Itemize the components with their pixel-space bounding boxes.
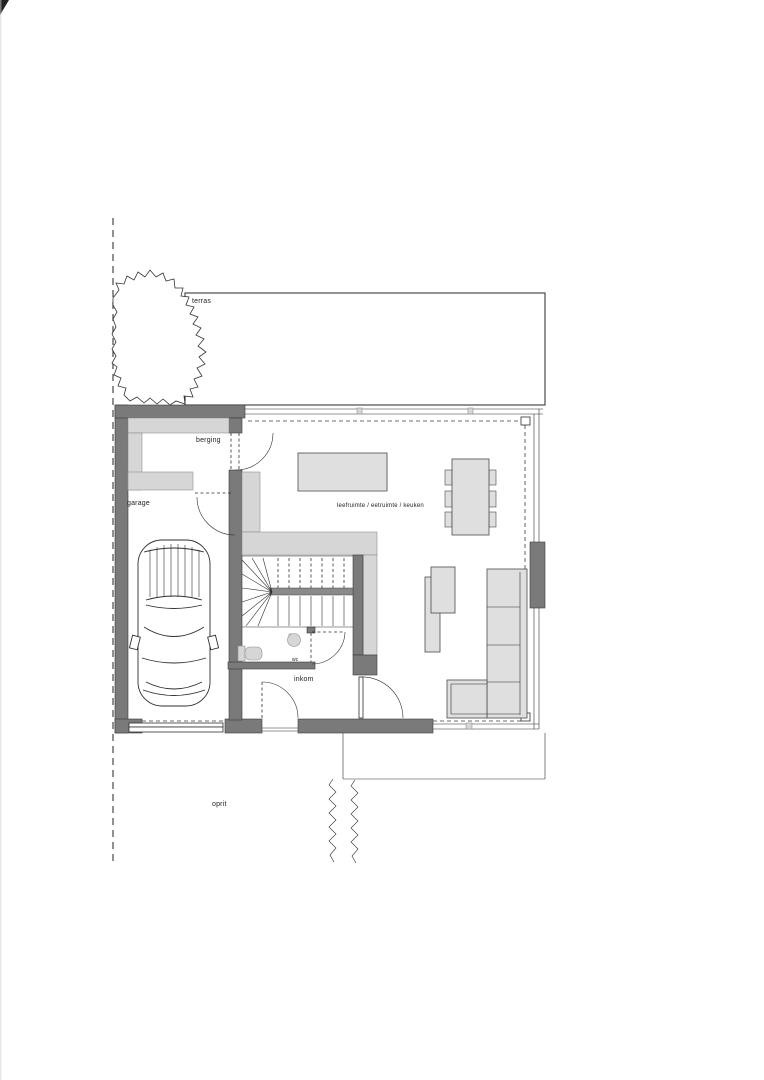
terrace-outline <box>185 293 545 405</box>
door-front <box>262 682 298 731</box>
room-label-inkom: inkom <box>294 676 314 683</box>
toilet-icon <box>238 646 262 661</box>
tree-icon <box>112 270 206 405</box>
winder-treads <box>242 558 272 626</box>
floorplan-page: terras berging garage leefruimte / eetru… <box>0 0 764 1080</box>
room-label-berging: berging <box>196 437 221 444</box>
door-inkom-living <box>359 677 403 718</box>
front-path <box>343 733 545 779</box>
garage-door <box>129 721 225 732</box>
room-label-wc: wc <box>292 657 299 663</box>
dining-table <box>452 459 489 535</box>
staircase <box>242 558 353 626</box>
room-label-terras: terras <box>192 298 211 305</box>
car-icon <box>129 540 218 706</box>
break-lines <box>329 779 358 863</box>
room-label-garage: garage <box>127 500 150 507</box>
sofa <box>447 569 527 718</box>
floorplan-drawing <box>0 0 764 1080</box>
sink-icon <box>288 634 301 647</box>
room-label-living: leefruimte / eetruimte / keuken <box>337 503 424 509</box>
dining-set <box>445 459 496 535</box>
tv-cabinet <box>425 567 455 652</box>
kitchen-island <box>298 453 387 491</box>
storage-cabinets <box>128 418 229 490</box>
door-wc <box>311 632 345 664</box>
room-label-oprit: oprit <box>212 801 227 808</box>
door-berging <box>231 433 273 470</box>
column <box>521 417 530 425</box>
scan-artifact <box>0 0 9 1080</box>
stair-rail <box>270 588 353 595</box>
